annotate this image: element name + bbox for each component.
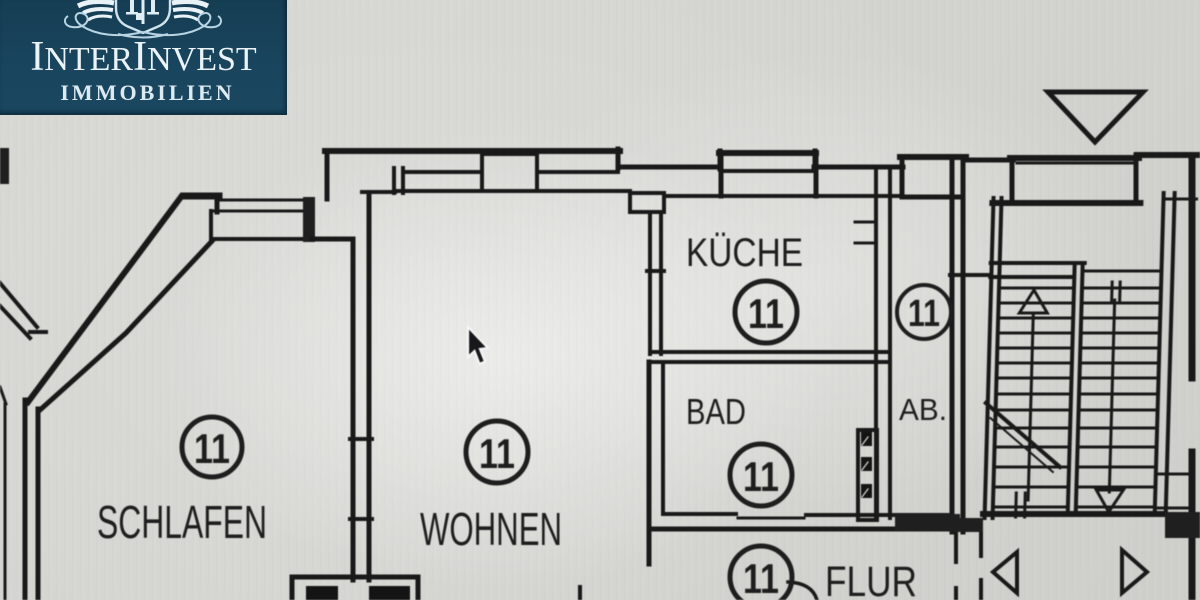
svg-text:SCHLAFEN: SCHLAFEN: [97, 496, 267, 548]
svg-text:11: 11: [194, 425, 230, 472]
svg-text:KÜCHE: KÜCHE: [686, 231, 803, 275]
svg-text:11: 11: [479, 430, 515, 477]
svg-text:AB.: AB.: [899, 392, 947, 427]
svg-text:11: 11: [908, 293, 940, 335]
svg-text:11: 11: [748, 290, 784, 337]
svg-text:11: 11: [743, 453, 779, 500]
svg-text:WOHNEN: WOHNEN: [420, 503, 562, 555]
svg-text:11: 11: [743, 555, 779, 600]
svg-text:FLUR: FLUR: [825, 558, 917, 600]
svg-text:BAD: BAD: [686, 391, 746, 432]
